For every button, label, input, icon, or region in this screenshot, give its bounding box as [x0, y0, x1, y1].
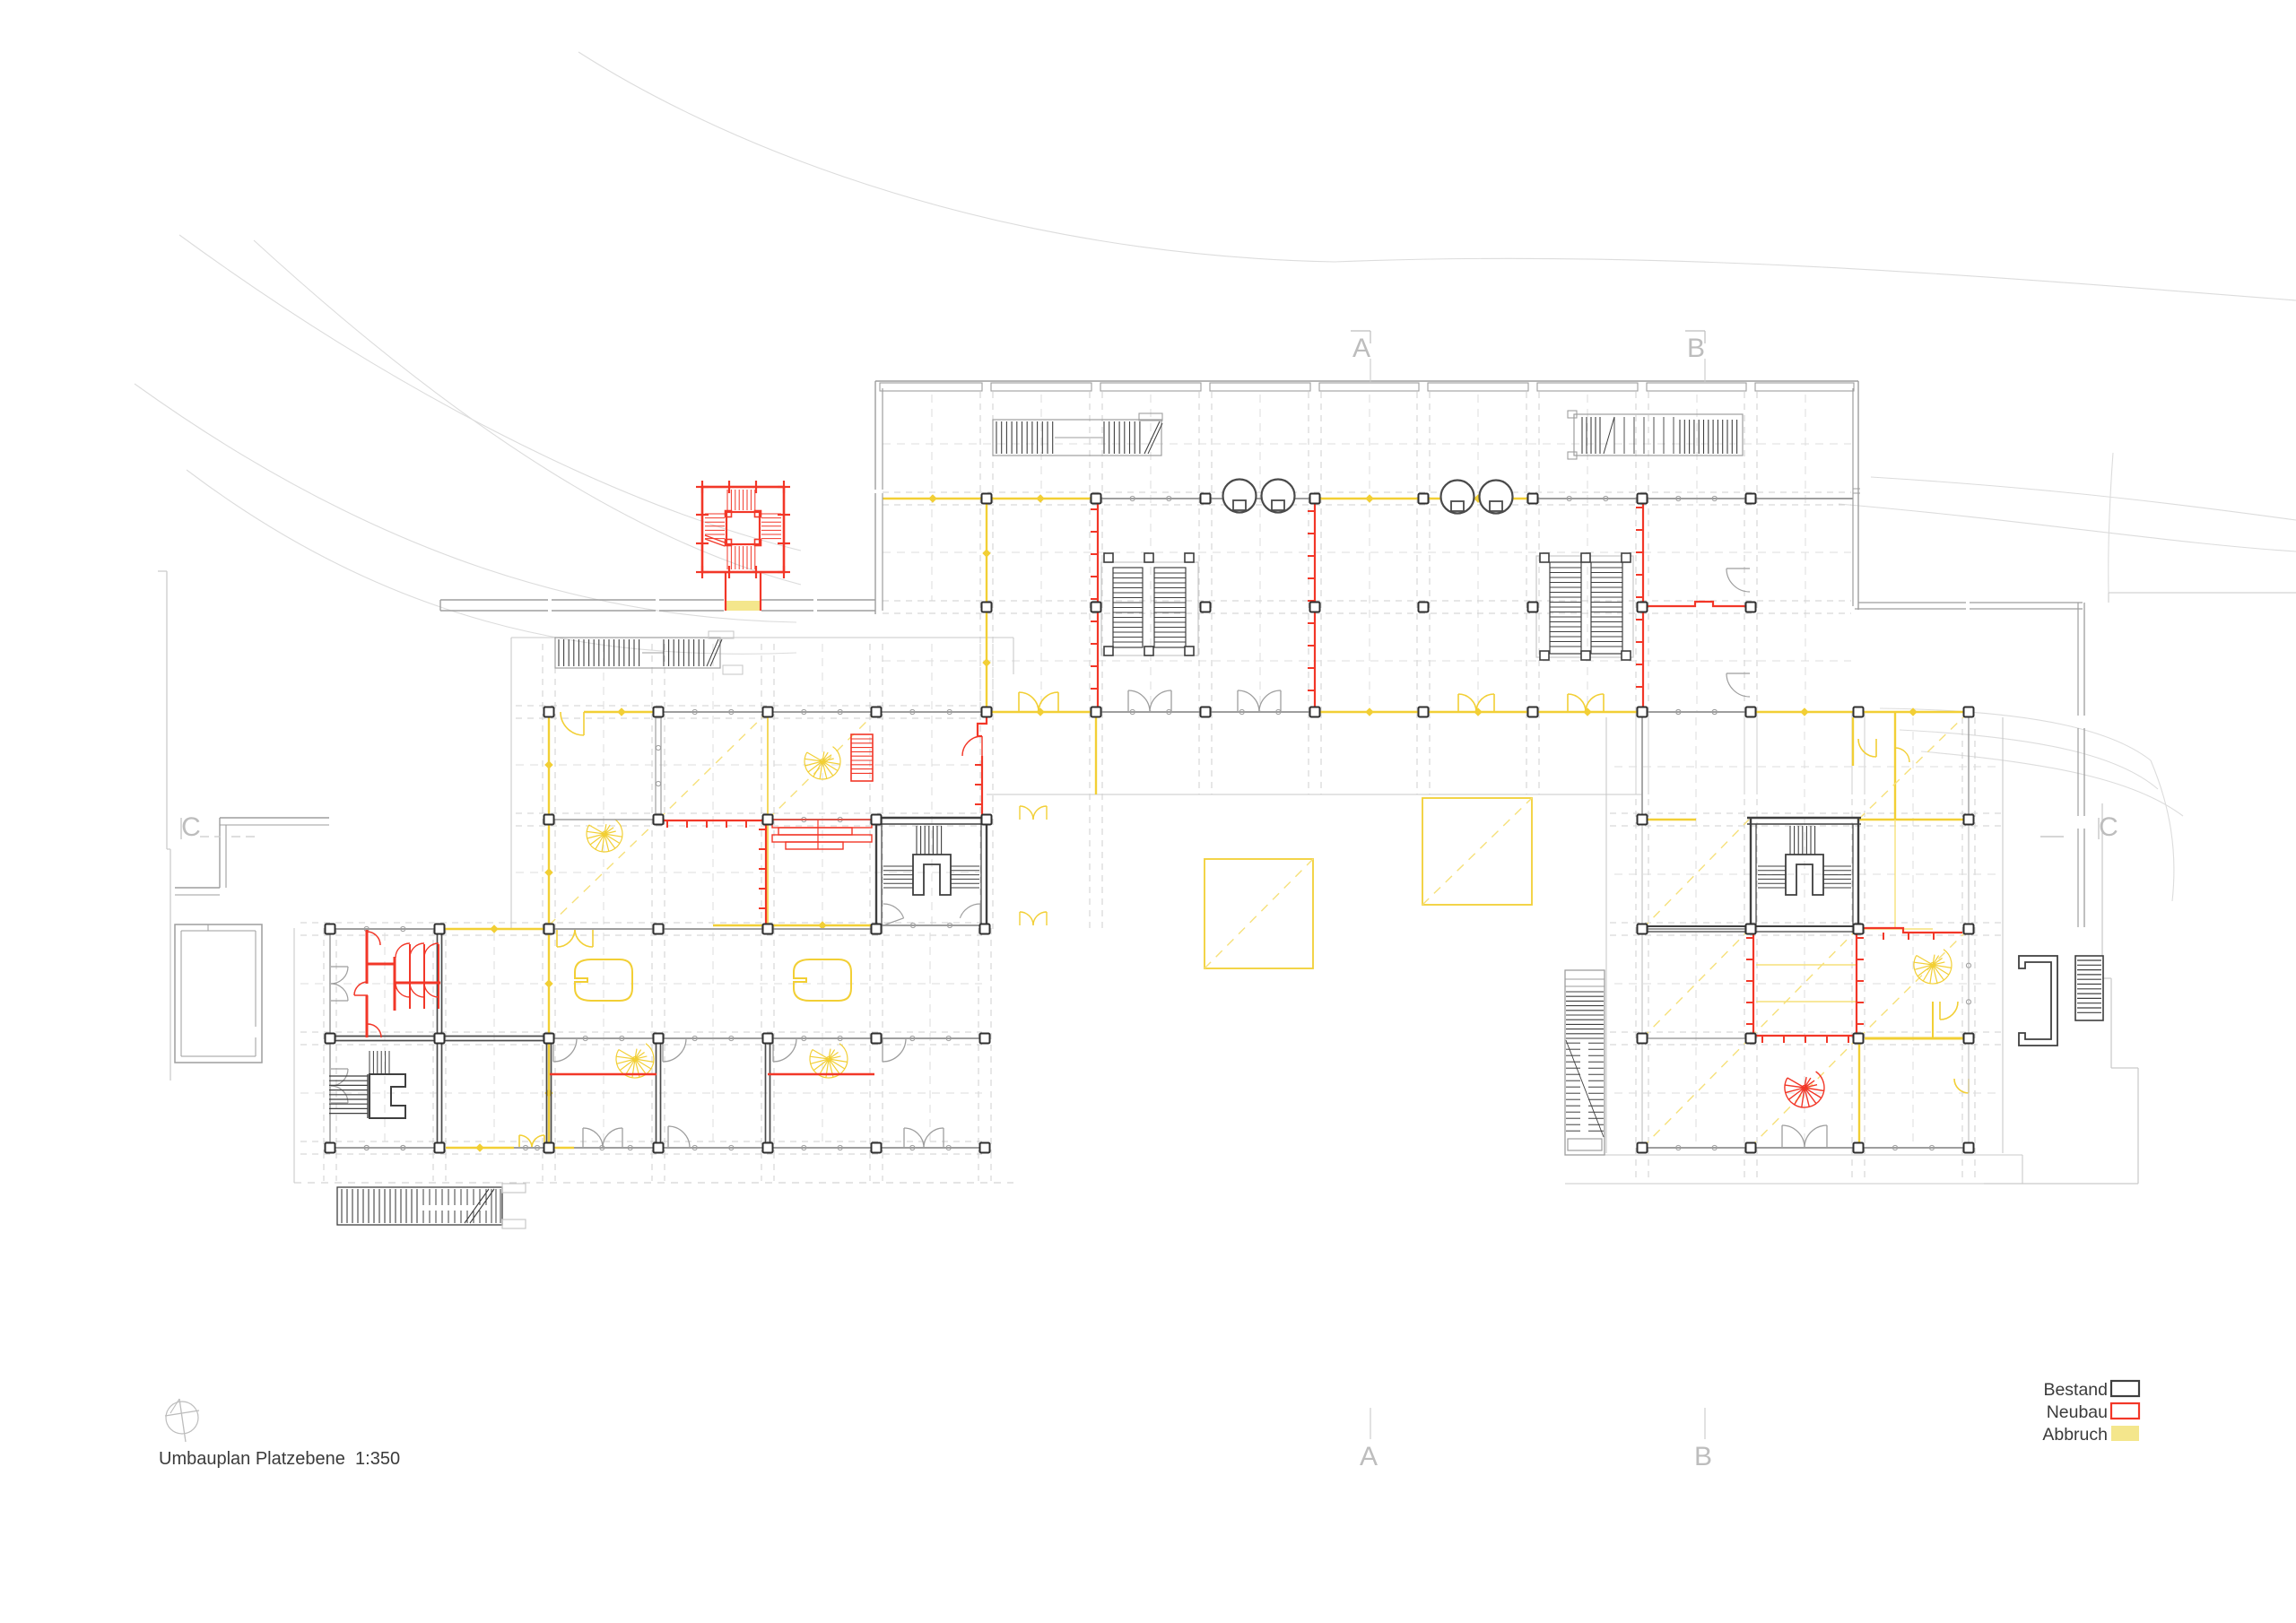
svg-text:A: A: [1360, 1442, 1378, 1471]
svg-text:Abbruch: Abbruch: [2042, 1425, 2108, 1445]
svg-text:C: C: [181, 812, 201, 842]
svg-text:Bestand: Bestand: [2043, 1380, 2108, 1400]
svg-text:Umbauplan Platzebene 1:350: Umbauplan Platzebene 1:350: [159, 1449, 400, 1469]
svg-text:C: C: [2099, 812, 2118, 842]
svg-text:A: A: [1352, 334, 1370, 363]
svg-text:Neubau: Neubau: [2047, 1402, 2108, 1422]
svg-text:B: B: [1694, 1442, 1712, 1471]
svg-text:B: B: [1687, 334, 1705, 363]
